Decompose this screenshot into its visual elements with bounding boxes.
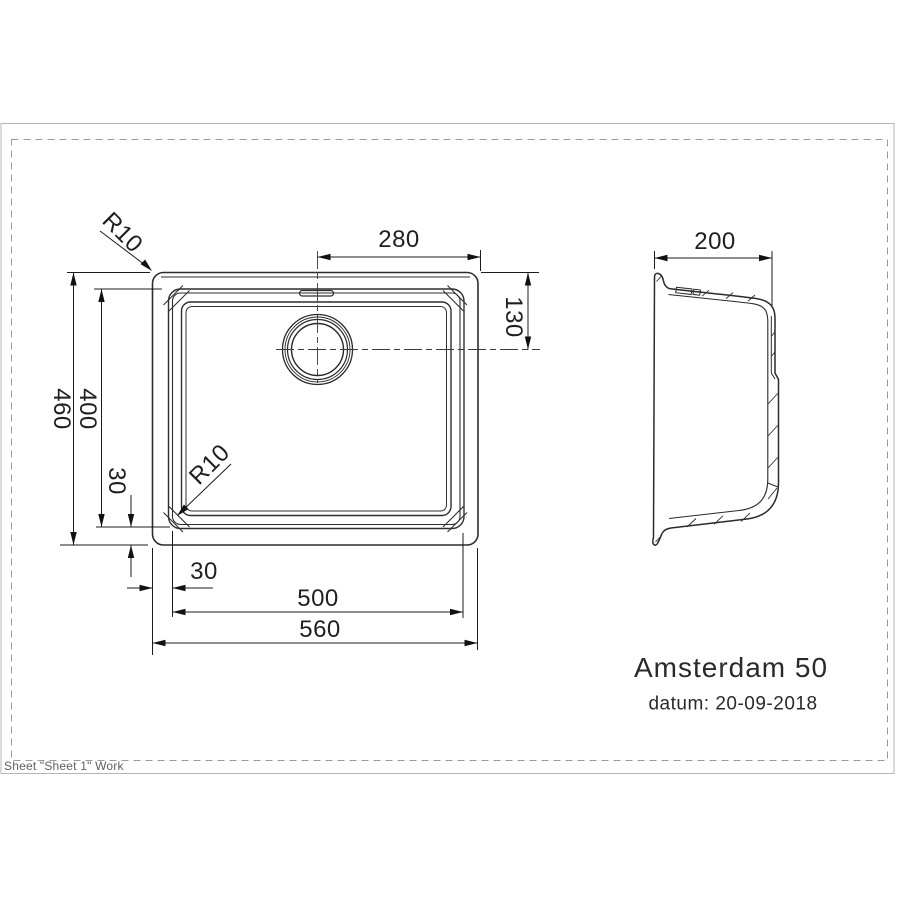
dim-inner-width-label: 500 (297, 587, 339, 611)
product-title: Amsterdam 50 (634, 654, 828, 682)
drawing-linework (0, 0, 900, 900)
dim-drain-from-top-label: 130 (501, 296, 525, 338)
side-view-profile (653, 273, 779, 545)
dim-inner-height-label: 400 (75, 388, 99, 430)
bowl-corner-chamfers (164, 286, 468, 533)
date-label: datum: 20-09-2018 (648, 695, 817, 714)
side-view-outer-outline (653, 273, 779, 545)
top-view-sink-outline (153, 273, 479, 546)
dim-overall-height-label: 460 (49, 388, 73, 430)
dim-left-offset-label: 30 (190, 560, 218, 584)
dim-overall-width-label: 560 (299, 618, 341, 642)
dim-depth-label: 200 (694, 230, 736, 254)
drawing-sheet: 460 400 30 130 280 30 500 560 200 R10 R1… (0, 0, 900, 900)
dim-bottom-offset-label: 30 (104, 467, 128, 495)
sheet-name-label: Sheet "Sheet 1" Work (4, 759, 124, 773)
top-view-bowl-rim (164, 286, 468, 533)
dim-drain-from-right-label: 280 (378, 228, 420, 252)
